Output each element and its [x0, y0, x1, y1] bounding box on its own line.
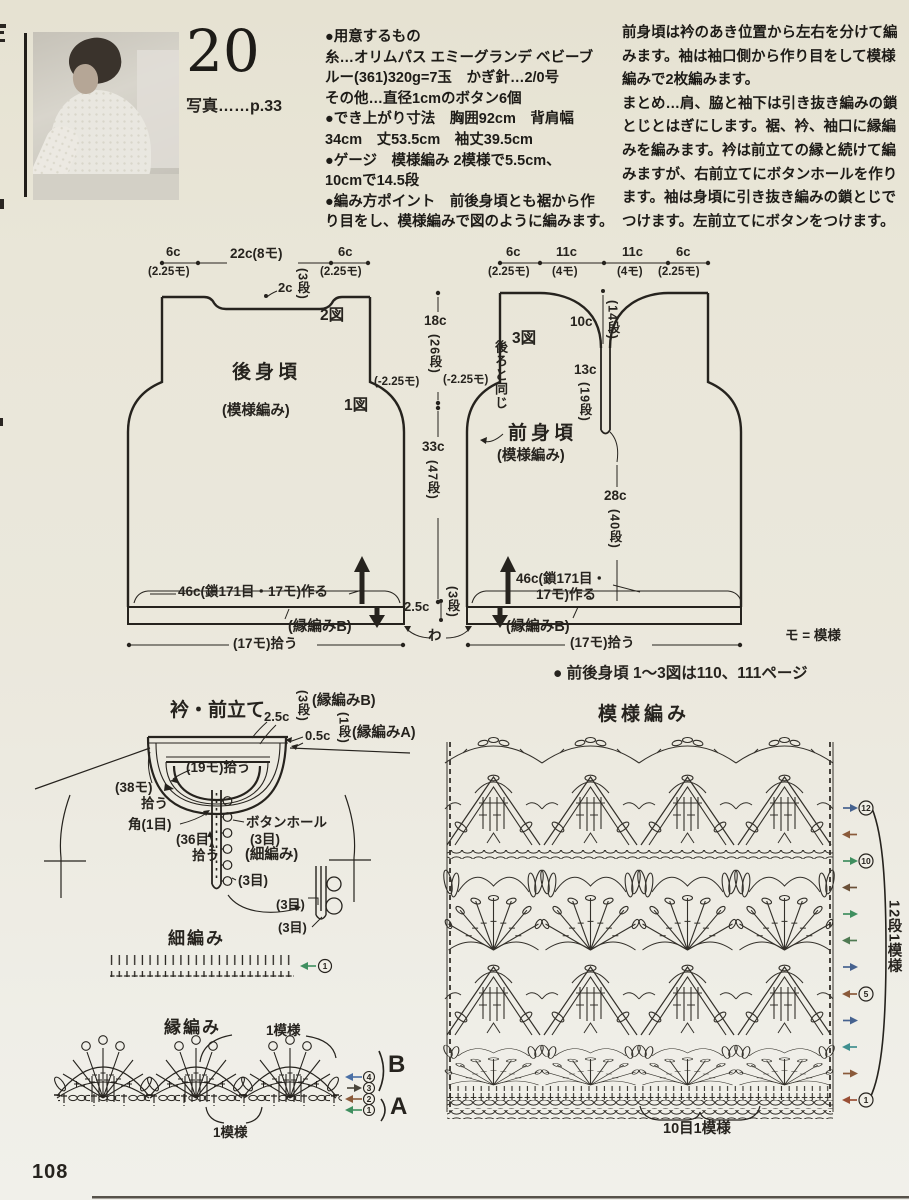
- pattern-row-1: 1: [864, 1095, 869, 1105]
- text-line: ●でき上がり寸法 胸囲92cm 背肩幅: [325, 109, 625, 130]
- collar-pickup-side-1: (38モ): [115, 781, 153, 795]
- back-armhole-decrease: (-2.25モ): [374, 376, 419, 388]
- photo-page-ref: 写真……p.33: [186, 92, 282, 116]
- back-cast-on: 46c(鎖171目・17モ)作る: [178, 585, 328, 599]
- front-shoulder-left-motifs: (2.25モ): [488, 266, 530, 278]
- edge-group-b: B: [388, 1052, 405, 1077]
- text-line: みますが、右前立てにボタンホールを作り: [622, 164, 909, 188]
- back-shoulder-width-right-motifs: (2.25モ): [320, 266, 362, 278]
- line-pre: ます。袖は身頃に引き抜き編みの鎖とじで: [622, 190, 896, 206]
- front-slit-length: 13c: [574, 363, 597, 377]
- text-line: まとめ…肩、脇と袖下は引き抜き編みの鎖: [622, 93, 909, 117]
- collar-3st-c: (3目): [278, 921, 307, 935]
- pattern-title: 模様編み: [598, 705, 690, 725]
- figure-2-ref: 2図: [320, 308, 344, 324]
- front-cast-on-2: 17モ)作る: [536, 588, 596, 602]
- same-as-back-note: 後ろと同じ: [494, 340, 507, 410]
- front-slit-rows: (19段): [578, 382, 591, 422]
- model-photo: [33, 32, 179, 200]
- line-pre: り目をし、模様編みで図のように編みます。: [325, 214, 614, 230]
- collar-3st-b: (3目): [276, 898, 305, 912]
- hem-band-height: 2.5c: [404, 600, 429, 614]
- collar-pickup-neck: (19モ)拾う: [186, 761, 251, 775]
- magazine-page: 1 4 3: [0, 0, 909, 1200]
- back-piece-title: 後身頃: [232, 363, 301, 383]
- back-shoulder-width-left-motifs: (2.25モ): [148, 266, 190, 278]
- text-line: ●ゲージ 模様編み 2模様で5.5cm、: [325, 151, 625, 172]
- pattern-horizontal-repeat: 10目1模様: [663, 1122, 731, 1137]
- back-neck-drop-rows: (3段): [296, 268, 309, 300]
- pattern-row-arrows: 12 10 5 1: [842, 801, 873, 1107]
- sc-row-number: 1: [323, 961, 328, 971]
- collar-pickup-side-2: 拾う: [141, 797, 168, 811]
- line-bold: まとめ: [622, 96, 666, 112]
- front-body-rows: (40段): [608, 509, 621, 549]
- line-bold: ●でき上がり寸法: [325, 111, 435, 127]
- edge-group-a: A: [390, 1094, 407, 1119]
- hem-ring-label: わ: [428, 629, 442, 643]
- front-piece-title: 前身頃: [508, 424, 577, 444]
- line-post: 胸囲92cm 背肩幅: [435, 111, 574, 127]
- front-cast-on-1: 46c(鎖171目・: [516, 572, 606, 586]
- line-pre: ルー(361)320g=7玉: [325, 70, 466, 86]
- front-shoulder-right-motifs: (2.25モ): [658, 266, 700, 278]
- line-pre: 編みで2枚編みます。: [622, 72, 759, 88]
- text-line: ●編み方ポイント 前後身頃とも裾から作: [325, 192, 625, 213]
- edge-row-2: 2: [367, 1094, 372, 1104]
- text-line: 前身頃は衿のあき位置から左右を分けて編: [622, 22, 909, 46]
- text-line: その他…直径1cmのボタン6個: [325, 89, 625, 110]
- text-line: ます。袖は身頃に引き抜き編みの鎖とじで: [622, 187, 909, 211]
- front-shoulder-width-left: 6c: [506, 245, 520, 259]
- edge-row-3: 3: [367, 1083, 372, 1093]
- line-bold: かぎ針: [466, 70, 510, 86]
- collar-3st-a: (3目): [238, 874, 268, 888]
- line-post: …2/0号: [510, 70, 559, 86]
- collar-band-height: 2.5c: [264, 710, 289, 724]
- materials-text: ●用意するもの 糸…オリムパス エミーグランデ ベビーブ ルー(361)320g…: [325, 27, 625, 233]
- figures-page-note: ● 前後身頃 1〜3図は110、111ページ: [553, 666, 808, 682]
- collar-pickup-front-2: 拾う: [192, 849, 219, 863]
- collar-edge-rows: (1段): [337, 712, 350, 744]
- collar-band-rows: (3段): [296, 690, 309, 722]
- collar-edge-stitch: (縁編みA): [352, 726, 416, 741]
- line-bold: ●用意するもの: [325, 29, 421, 45]
- side-rows: (47段): [426, 460, 439, 500]
- edge-row-arrows: 4 3 2 1: [345, 1072, 375, 1116]
- pattern-row-5: 5: [864, 989, 869, 999]
- back-stitch-label: (模様編み): [222, 404, 290, 419]
- side-length: 33c: [422, 440, 445, 454]
- front-body-length: 28c: [604, 489, 627, 503]
- back-pickup: (17モ)拾う: [233, 637, 298, 651]
- pattern-row-10: 10: [861, 856, 871, 866]
- text-line: 34cm 丈53.5cm 袖丈39.5cm: [325, 130, 625, 151]
- line-pre: 10cmで14.5段: [325, 173, 419, 189]
- front-neck-left-motifs: (4モ): [552, 266, 578, 278]
- text-line: ルー(361)320g=7玉 かぎ針…2/0号: [325, 68, 625, 89]
- text-line: 編みで2枚編みます。: [622, 69, 909, 93]
- text-line: り目をし、模様編みで図のように編みます。: [325, 212, 625, 233]
- pattern-vertical-repeat: 12段1模様: [886, 900, 901, 974]
- pattern-chart: [442, 738, 886, 1121]
- collar-title: 衿・前立て: [170, 701, 265, 721]
- text-line: とじとはぎにします。裾、衿、袖口に縁編: [622, 116, 909, 140]
- buttonhole-label: ボタンホール: [246, 816, 327, 830]
- sc-chart-title: 細編み: [168, 930, 225, 948]
- edge-row-4: 4: [367, 1072, 372, 1082]
- photo-rule: [24, 33, 27, 197]
- front-neck-depth-rows: (14段): [606, 300, 619, 340]
- text-line: ●用意するもの: [325, 27, 625, 48]
- edge-chart-title: 縁編み: [164, 1019, 221, 1037]
- front-edge-stitch: (縁編みB): [506, 620, 570, 635]
- front-pickup: (17モ)拾う: [570, 636, 635, 650]
- line-bold: ●編み方ポイント: [325, 194, 435, 210]
- line-post: …肩、脇と袖下は引き抜き編みの鎖: [666, 96, 898, 112]
- front-shoulder-width-right: 6c: [676, 245, 690, 259]
- motif-legend: モ = 模様: [785, 629, 841, 643]
- front-neck-right-motifs: (4モ): [617, 266, 643, 278]
- line-bold: ●ゲージ: [325, 153, 377, 169]
- text-line: 糸…オリムパス エミーグランデ ベビーブ: [325, 48, 625, 69]
- front-neck-width-right: 11c: [622, 245, 643, 259]
- text-line: みを編みます。衿は前立ての縁と続けて編: [622, 140, 909, 164]
- collar-corner-stitch: 角(1目): [128, 818, 172, 832]
- collar-edge-height: 0.5c: [305, 729, 330, 743]
- line-pre: つけます。左前立てにボタンをつけます。: [622, 214, 895, 230]
- text-line: つけます。左前立てにボタンをつけます。: [622, 211, 909, 235]
- collar-sc-label: (細編み): [245, 848, 298, 863]
- item-number: 20: [186, 22, 260, 80]
- front-neck-depth: 10c: [570, 315, 593, 329]
- edge-repeat-top: 1模様: [266, 1024, 301, 1038]
- collar-diagram: [35, 722, 410, 927]
- front-armhole-decrease: (-2.25モ): [443, 374, 488, 386]
- sc-chart: 1: [110, 955, 332, 977]
- line-post: 前後身頃とも裾から作: [435, 194, 595, 210]
- armhole-length: 18c: [424, 314, 447, 328]
- back-shoulder-width-right: 6c: [338, 245, 352, 259]
- back-neck-width: 22c(8モ): [230, 247, 283, 261]
- page-number: 108: [32, 1161, 68, 1184]
- figure-3-ref: 3図: [512, 331, 536, 347]
- pattern-row-12: 12: [861, 803, 871, 813]
- armhole-rows: (26段): [428, 334, 441, 374]
- line-post: …オリムパス エミーグランデ ベビーブ: [340, 50, 594, 66]
- line-pre: 前身頃は衿のあき位置から左右を分けて編: [622, 25, 898, 41]
- line-pre: みます。袖は袖口側から作り目をして模様: [622, 49, 896, 65]
- text-line: みます。袖は袖口側から作り目をして模様: [622, 46, 909, 70]
- line-pre: みを編みます。衿は前立ての縁と続けて編: [622, 143, 896, 159]
- front-neck-width-left: 11c: [556, 245, 577, 259]
- howto-text: 前身頃は衿のあき位置から左右を分けて編 みます。袖は袖口側から作り目をして模様 …: [622, 22, 909, 234]
- buttonhole-stitches: (3目): [250, 833, 280, 847]
- photo-lap: [33, 174, 179, 200]
- collar-pickup-front-1: (36目): [176, 833, 214, 847]
- line-post: 模様編み 2模様で5.5cm、: [377, 153, 561, 169]
- hem-band-rows: (3段): [446, 586, 459, 618]
- back-shoulder-width-left: 6c: [166, 245, 180, 259]
- front-stitch-label: (模様編み): [497, 449, 565, 464]
- edge-chart: 4 3 2 1: [53, 1035, 385, 1123]
- line-bold: 糸: [325, 50, 340, 66]
- line-pre: 34cm 丈53.5cm 袖丈39.5cm: [325, 132, 533, 148]
- figure-1-ref: 1図: [344, 398, 368, 414]
- back-neck-drop: 2c: [278, 281, 292, 295]
- line-pre: みますが、右前立てにボタンホールを作り: [622, 167, 897, 183]
- edge-row-1: 1: [367, 1105, 372, 1115]
- line-post: …直径1cmのボタン6個: [369, 91, 522, 107]
- edge-repeat-bottom: 1模様: [213, 1126, 248, 1140]
- line-pre: とじとはぎにします。裾、衿、袖口に縁編: [622, 119, 896, 135]
- back-edge-stitch: (縁編みB): [288, 620, 352, 635]
- line-bold: その他: [325, 91, 369, 107]
- collar-band-stitch: (縁編みB): [312, 694, 376, 709]
- text-line: 10cmで14.5段: [325, 171, 625, 192]
